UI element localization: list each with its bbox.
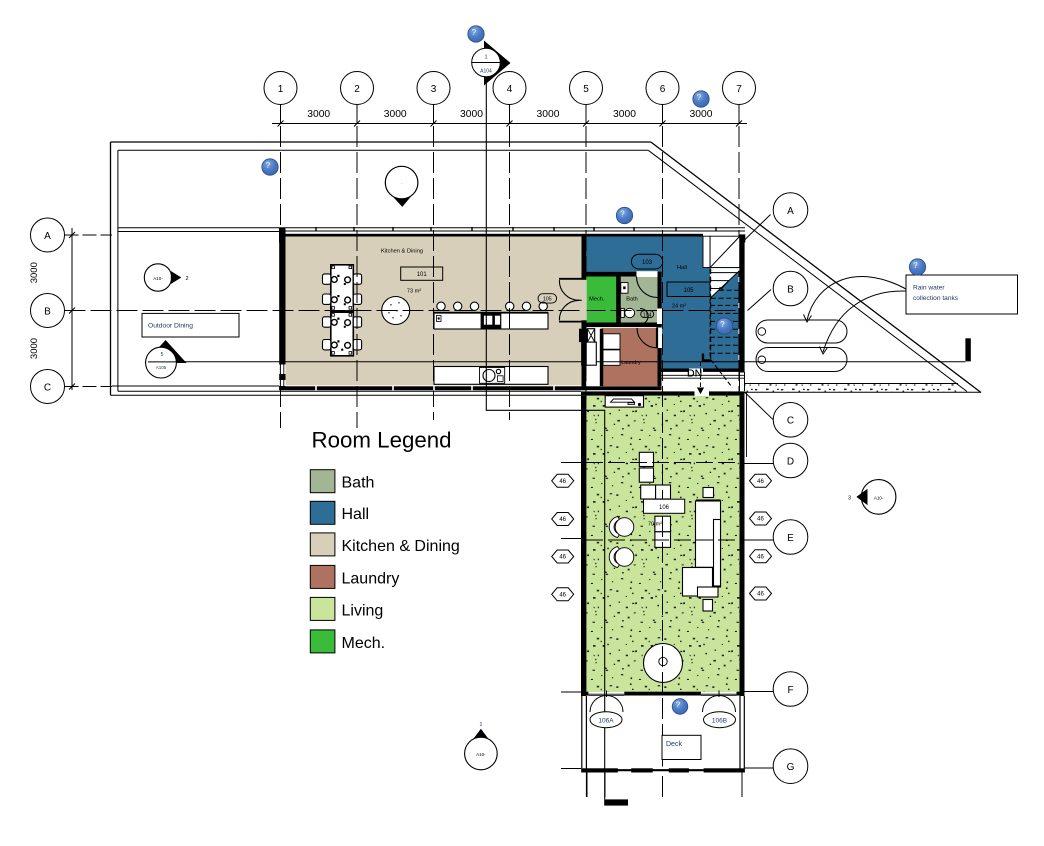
svg-text:46: 46 [757, 554, 764, 560]
svg-text:?: ? [472, 28, 477, 37]
svg-text:Bath: Bath [626, 297, 638, 303]
svg-text:Mech.: Mech. [342, 635, 386, 652]
svg-text:3000: 3000 [307, 109, 330, 120]
svg-text:Rain water: Rain water [913, 285, 945, 292]
svg-text:B: B [787, 284, 794, 295]
svg-text:46: 46 [559, 479, 566, 485]
svg-text:Laundry: Laundry [621, 360, 641, 366]
svg-text:Hall: Hall [677, 265, 687, 271]
svg-text:A10-: A10- [476, 752, 486, 757]
svg-text:A104: A104 [480, 69, 492, 75]
svg-text:106B: 106B [712, 718, 727, 725]
svg-text:6: 6 [660, 84, 666, 95]
svg-text:?: ? [913, 261, 918, 270]
svg-text:105: 105 [683, 288, 694, 294]
svg-text:Kitchen & Dining: Kitchen & Dining [342, 538, 460, 555]
svg-text:1: 1 [484, 55, 487, 61]
svg-text:46: 46 [757, 517, 764, 523]
svg-text:1: 1 [278, 84, 284, 95]
svg-text:G: G [787, 762, 795, 773]
svg-text:collection tanks: collection tanks [913, 295, 959, 302]
svg-text:70 m²: 70 m² [648, 522, 662, 528]
svg-text:73 m²: 73 m² [407, 289, 421, 295]
svg-text:46: 46 [559, 517, 566, 523]
svg-text:Room Legend: Room Legend [312, 428, 452, 453]
svg-text:C: C [44, 382, 51, 393]
svg-text:46: 46 [559, 555, 566, 561]
svg-text:Deck: Deck [666, 741, 682, 748]
svg-text:A: A [787, 206, 794, 217]
svg-text:5: 5 [161, 352, 164, 358]
svg-text:DN: DN [687, 368, 702, 380]
svg-text:3: 3 [431, 84, 437, 95]
svg-text:106A: 106A [598, 718, 614, 725]
svg-text:4: 4 [507, 84, 513, 95]
svg-text:A: A [44, 231, 51, 242]
svg-text:1: 1 [479, 722, 482, 728]
svg-text:A10-: A10- [874, 495, 884, 500]
svg-text:3000: 3000 [460, 109, 483, 120]
svg-text:A10-: A10- [153, 276, 163, 281]
svg-text:3: 3 [848, 495, 851, 501]
svg-text:46: 46 [757, 479, 764, 485]
svg-text:Outdoor Dining: Outdoor Dining [148, 322, 193, 329]
svg-text:105: 105 [543, 296, 552, 302]
svg-text:3000: 3000 [29, 262, 40, 283]
svg-text:106: 106 [659, 505, 670, 511]
svg-text:3000: 3000 [613, 109, 636, 120]
svg-text:Mech.: Mech. [589, 297, 605, 303]
svg-text:?: ? [620, 209, 625, 218]
svg-text:2: 2 [354, 84, 360, 95]
svg-text:E: E [787, 533, 794, 544]
svg-text:3000: 3000 [384, 109, 407, 120]
svg-text:46: 46 [757, 592, 764, 598]
svg-text:103: 103 [642, 260, 653, 266]
svg-text:C: C [787, 416, 794, 427]
svg-text:?: ? [266, 161, 271, 170]
svg-text:Living: Living [342, 602, 384, 619]
svg-text:Kitchen & Dining: Kitchen & Dining [381, 249, 423, 255]
svg-text:46: 46 [559, 593, 566, 599]
svg-text:Hall: Hall [342, 506, 370, 523]
svg-text:D: D [787, 456, 794, 467]
svg-text:3000: 3000 [29, 338, 40, 359]
svg-text:?: ? [720, 320, 725, 329]
svg-text:101: 101 [417, 272, 428, 278]
svg-text:5: 5 [583, 84, 589, 95]
svg-text:Bath: Bath [342, 475, 375, 492]
svg-text:Laundry: Laundry [342, 570, 400, 587]
svg-text:3000: 3000 [537, 109, 560, 120]
svg-text:104: 104 [643, 312, 652, 318]
svg-text:B: B [44, 306, 51, 317]
svg-text:A105: A105 [156, 365, 167, 370]
svg-text:3000: 3000 [690, 109, 713, 120]
svg-text:?: ? [697, 93, 702, 102]
svg-text:F: F [787, 685, 793, 696]
svg-text:7: 7 [736, 84, 742, 95]
svg-text:2: 2 [186, 276, 189, 282]
svg-text:?: ? [676, 700, 681, 709]
svg-text:24 m²: 24 m² [672, 303, 686, 309]
